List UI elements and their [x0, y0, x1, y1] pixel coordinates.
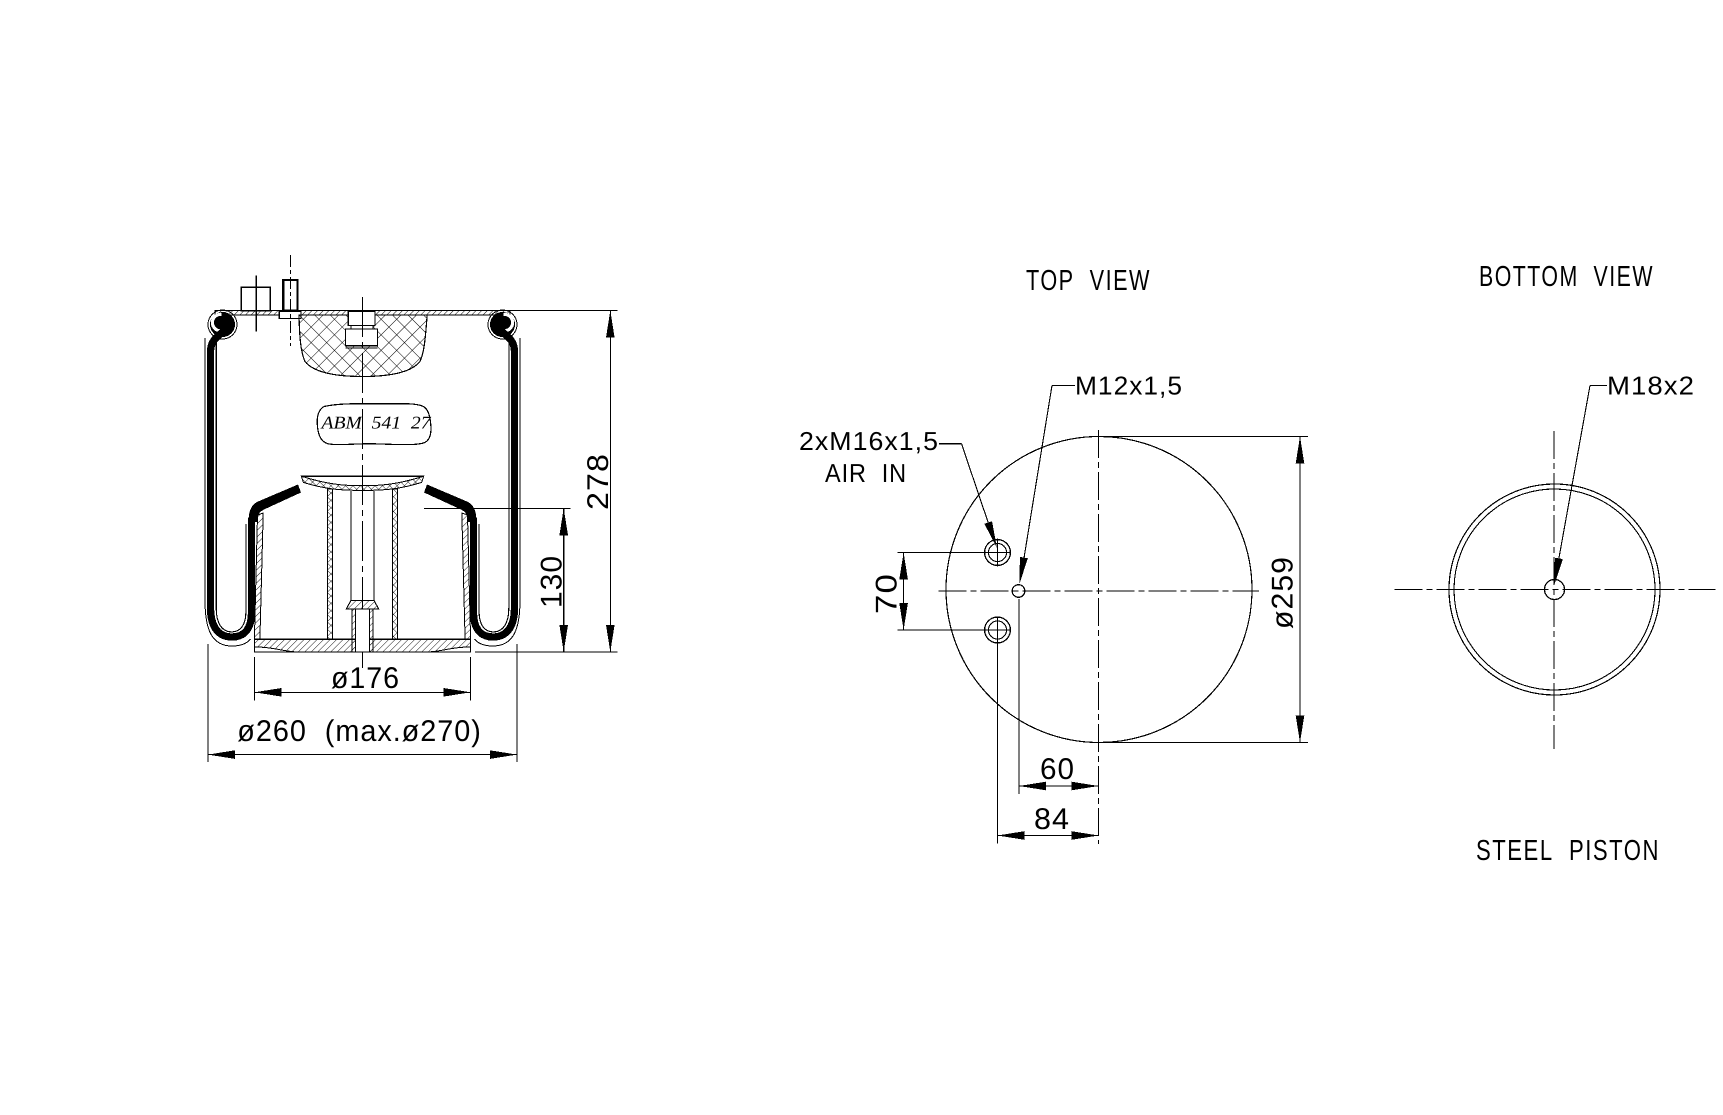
- svg-text:278: 278: [582, 453, 615, 510]
- svg-text:AIR IN: AIR IN: [825, 458, 907, 488]
- svg-text:BOTTOM VIEW: BOTTOM VIEW: [1479, 261, 1654, 293]
- svg-text:84: 84: [1034, 803, 1070, 836]
- svg-text:TOP VIEW: TOP VIEW: [1026, 265, 1151, 297]
- svg-text:2xM16x1,5: 2xM16x1,5: [799, 426, 939, 456]
- svg-text:M18x2: M18x2: [1607, 371, 1695, 401]
- svg-text:STEEL PISTON: STEEL PISTON: [1476, 835, 1660, 867]
- svg-text:ø260 (max.ø270): ø260 (max.ø270): [237, 715, 481, 748]
- svg-text:130: 130: [536, 555, 569, 608]
- svg-text:M12x1,5: M12x1,5: [1075, 371, 1183, 401]
- svg-text:60: 60: [1040, 753, 1075, 786]
- svg-text:ø176: ø176: [331, 662, 400, 695]
- svg-text:ABM 541 27: ABM 541 27: [320, 413, 431, 433]
- svg-text:ø259: ø259: [1267, 556, 1300, 629]
- svg-text:70: 70: [871, 573, 904, 614]
